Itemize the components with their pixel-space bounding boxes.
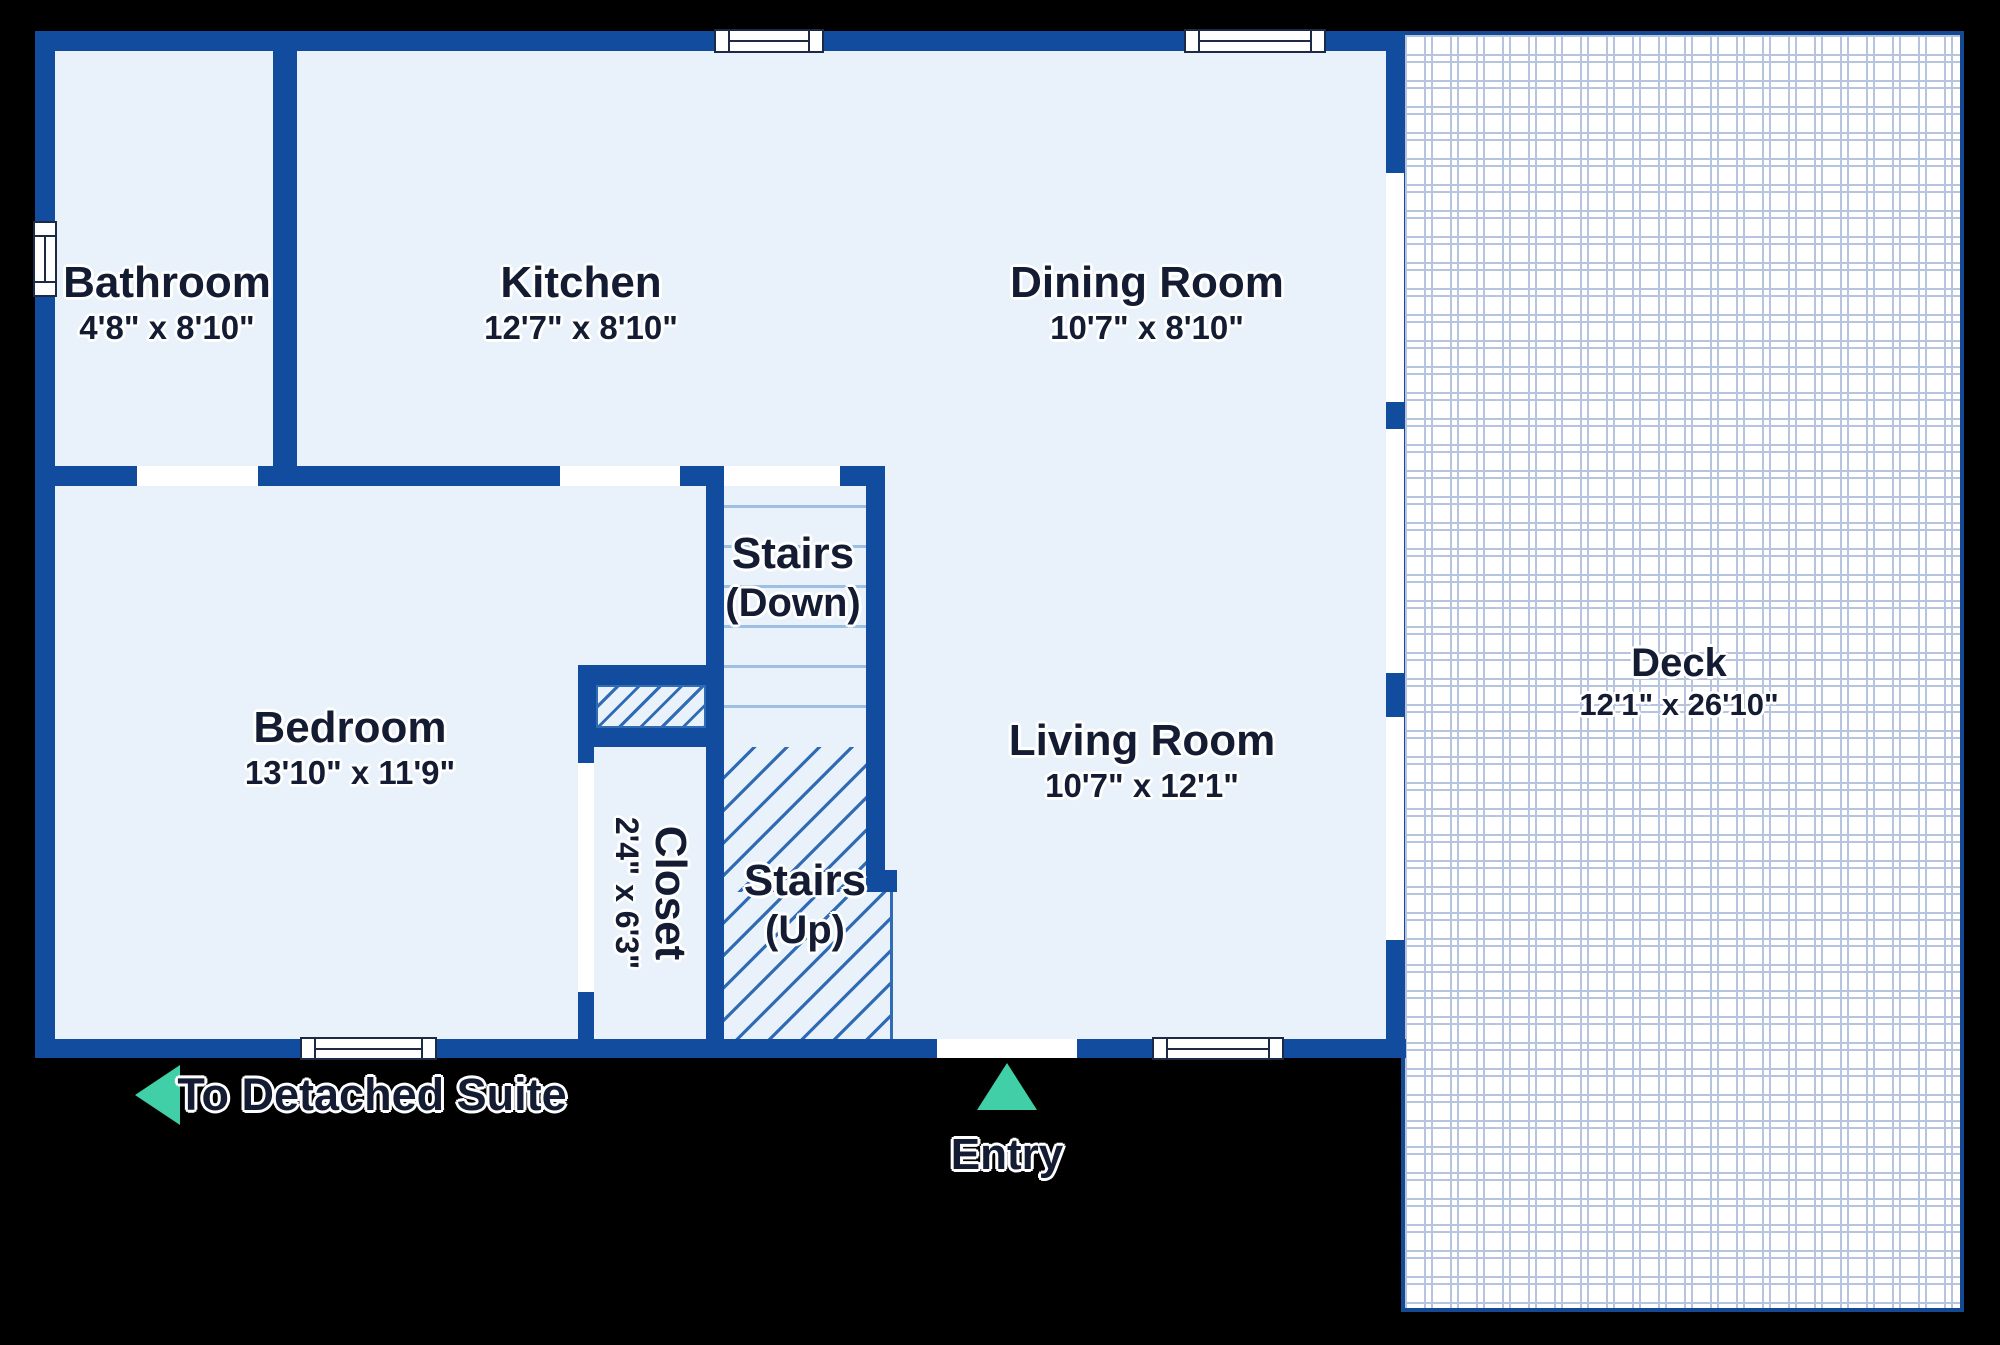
exterior-wall-left (35, 31, 55, 1058)
room-label-bedroom: Bedroom 13'10" x 11'9" (245, 703, 455, 793)
room-name: Dining Room (1010, 258, 1284, 308)
window-glass-line (728, 40, 810, 42)
window-cap (728, 31, 730, 51)
wall-landing-bottom (578, 728, 724, 747)
entry-label: Entry (951, 1130, 1063, 1180)
room-dims: 12'7" x 8'10" (484, 308, 678, 348)
wall-closet-left-upper (578, 747, 594, 763)
to-detached-suite-label: To Detached Suite (177, 1069, 566, 1121)
left-arrow-icon (135, 1065, 180, 1125)
room-dims: 13'10" x 11'9" (245, 753, 455, 793)
dining-window (1184, 29, 1326, 53)
room-name: Stairs (725, 529, 861, 579)
room-name: Bedroom (245, 703, 455, 753)
wall-stairwell-foot (866, 870, 897, 892)
exterior-wall-right-seg2 (1386, 402, 1404, 429)
room-dims: (Down) (725, 579, 861, 627)
room-name: Living Room (1009, 716, 1275, 766)
wall-landing-top (578, 665, 724, 685)
room-name: Deck (1579, 639, 1778, 687)
wall-divider-seg1 (55, 466, 137, 486)
room-dims: 10'7" x 12'1" (1009, 766, 1275, 806)
window-cap (35, 235, 55, 237)
room-dims: 10'7" x 8'10" (1010, 308, 1284, 348)
window-glass-line (44, 235, 46, 283)
window-cap (1268, 1039, 1270, 1058)
room-label-closet: Closet 2'4" x 6'3" (609, 817, 695, 969)
bedroom-window (300, 1037, 437, 1060)
wall-bathroom-kitchen (273, 51, 297, 484)
window-glass-line (314, 1048, 423, 1050)
window-glass-line (1198, 40, 1312, 42)
room-name: Closet (645, 817, 695, 969)
room-label-stairs-down: Stairs (Down) (725, 529, 861, 627)
closet-door-opening (578, 763, 594, 992)
room-label-dining-room: Dining Room 10'7" x 8'10" (1010, 258, 1284, 348)
room-name: Stairs (744, 856, 866, 906)
deck-opening-strip (1386, 51, 1404, 1039)
room-dims: (Up) (744, 906, 866, 954)
window-cap (314, 1039, 316, 1058)
bedroom-door-opening (560, 466, 680, 486)
bathroom-window (33, 221, 57, 297)
wall-stairwell-right (866, 466, 885, 870)
exterior-wall-right-seg1 (1386, 31, 1404, 173)
room-name: Kitchen (484, 258, 678, 308)
kitchen-window (714, 29, 824, 53)
exterior-wall-right-seg3 (1386, 673, 1404, 717)
room-label-deck: Deck 12'1" x 26'10" (1579, 639, 1778, 723)
wall-landing-left (578, 665, 596, 747)
room-name: Bathroom (63, 258, 271, 308)
landing-hatch (596, 685, 706, 728)
room-label-stairs-up: Stairs (Up) (744, 856, 866, 954)
stairs-door-opening (724, 466, 840, 486)
wall-closet-left-lower (578, 992, 594, 1040)
room-label-bathroom: Bathroom 4'8" x 8'10" (63, 258, 271, 348)
room-label-kitchen: Kitchen 12'7" x 8'10" (484, 258, 678, 348)
wall-stairwell-left (706, 466, 724, 1040)
bathroom-door-opening (137, 466, 258, 486)
floor-plan: Bathroom 4'8" x 8'10" Kitchen 12'7" x 8'… (0, 0, 2000, 1345)
room-dims: 4'8" x 8'10" (63, 308, 271, 348)
window-cap (421, 1039, 423, 1058)
window-cap (1310, 31, 1312, 51)
up-arrow-icon (977, 1063, 1037, 1110)
room-dims: 12'1" x 26'10" (1579, 687, 1778, 723)
window-glass-line (1166, 1048, 1270, 1050)
room-dims: 2'4" x 6'3" (609, 817, 645, 969)
window-cap (808, 31, 810, 51)
window-cap (1166, 1039, 1168, 1058)
exterior-wall-right-seg4 (1386, 940, 1404, 1058)
entry-door-opening (937, 1039, 1077, 1058)
window-cap (1198, 31, 1200, 51)
window-cap (35, 281, 55, 283)
room-label-living-room: Living Room 10'7" x 12'1" (1009, 716, 1275, 806)
living-window (1152, 1037, 1284, 1060)
wall-divider-seg2 (258, 466, 560, 486)
